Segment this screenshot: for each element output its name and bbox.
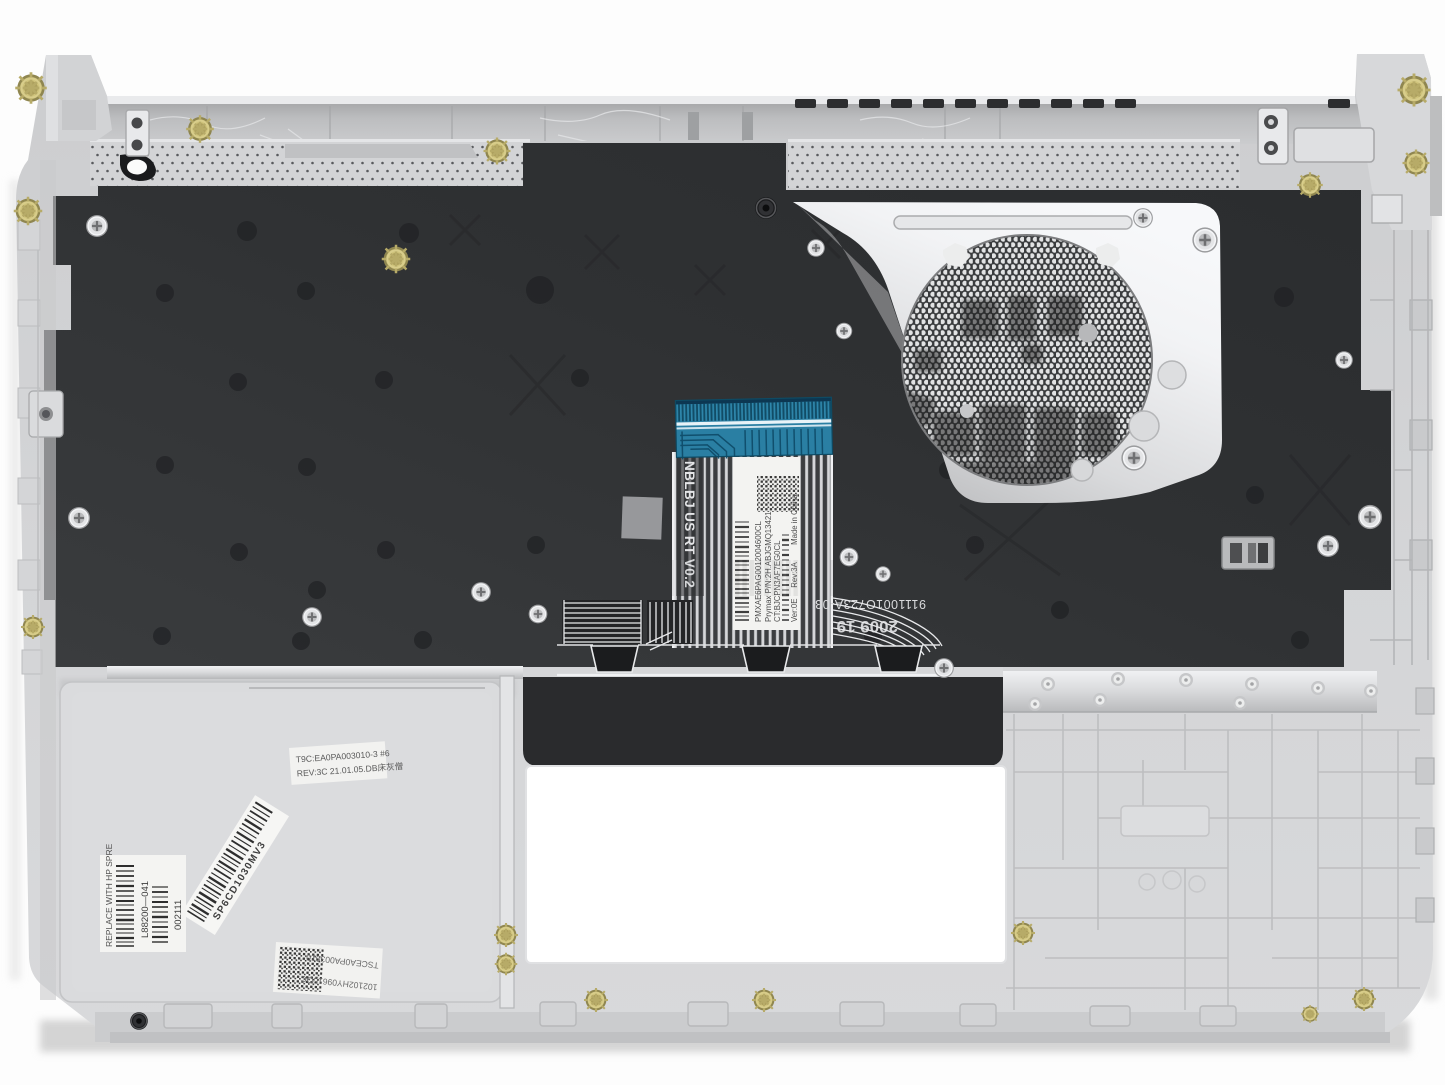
svg-text:Ver:0E Rev:3A Made: Ver:0E Rev:3A Made in China xyxy=(790,494,799,622)
svg-text:L88200—041: L88200—041 xyxy=(140,881,151,938)
svg-text:REPLACE WITH HP SPRE: REPLACE WITH HP SPRE xyxy=(104,843,114,947)
svg-text:002111: 002111 xyxy=(173,900,184,930)
svg-text:9111001O723A-03: 9111001O723A-03 xyxy=(815,597,926,611)
svg-text:2009 19: 2009 19 xyxy=(837,617,898,636)
